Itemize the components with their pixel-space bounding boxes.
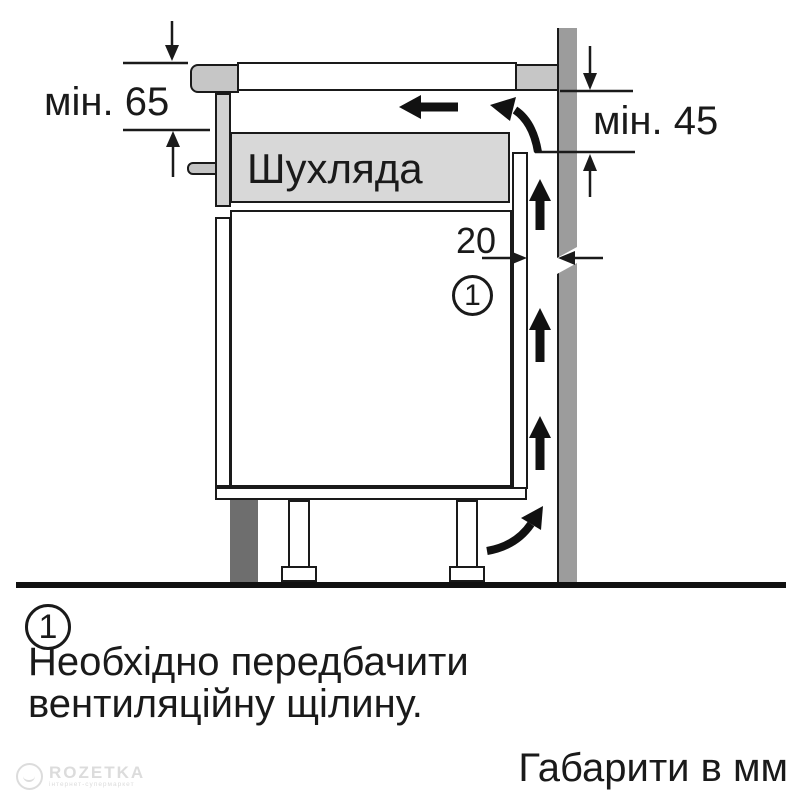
installation-diagram: Шухляда мін. 65 мін. 45 20 1 [0,0,800,800]
floor-line [16,582,786,588]
dim-arrow-down-left-icon [165,21,179,61]
units-note: Габарити в мм [420,746,788,791]
hob-body [237,62,517,91]
airflow-arrow-curved-bottom-icon [487,506,543,551]
drawer-handle [187,162,217,175]
legend-text-line-2: вентиляційну щілину. [28,682,423,727]
cabinet-bottom-panel [215,487,527,500]
airflow-arrow-up-2-icon [529,308,551,362]
cabinet-leg-front-foot [281,566,317,582]
dim-arrow-up-right-icon [583,154,597,197]
dim-arrow-down-right-icon [583,46,597,90]
cabinet-leg-back-foot [449,566,485,582]
worktop-front-edge [190,64,239,93]
watermark: ROZETKA інтернет-супермаркет [16,763,145,790]
cabinet-back-panel [512,152,528,489]
watermark-tagline: інтернет-супермаркет [49,781,145,789]
worktop-back-section [515,64,559,91]
legend-text-line-1: Необхідно передбачити [28,640,469,685]
kitchen-wall [557,28,577,582]
dimension-label-gap-20: 20 [452,220,500,262]
watermark-brand: ROZETKA [49,764,145,781]
cabinet-leg-front [288,500,310,568]
dimension-label-min-45: мін. 45 [593,99,718,144]
cabinet-plinth [230,500,258,582]
rozetka-logo-icon [16,763,43,790]
cabinet-leg-back [456,500,478,568]
drawer-box: Шухляда [230,132,510,203]
dimension-label-min-65: мін. 65 [44,80,169,125]
airflow-arrow-up-3-icon [529,416,551,470]
airflow-arrow-left-icon [399,95,458,119]
drawer-label: Шухляда [247,145,423,193]
cabinet-door-panel [215,217,231,487]
drawer-front-panel [215,93,231,207]
callout-1-badge: 1 [452,275,493,316]
dim-arrow-up-left-icon [166,131,180,177]
airflow-arrow-up-1-icon [529,179,551,230]
callout-1-number: 1 [464,279,481,313]
